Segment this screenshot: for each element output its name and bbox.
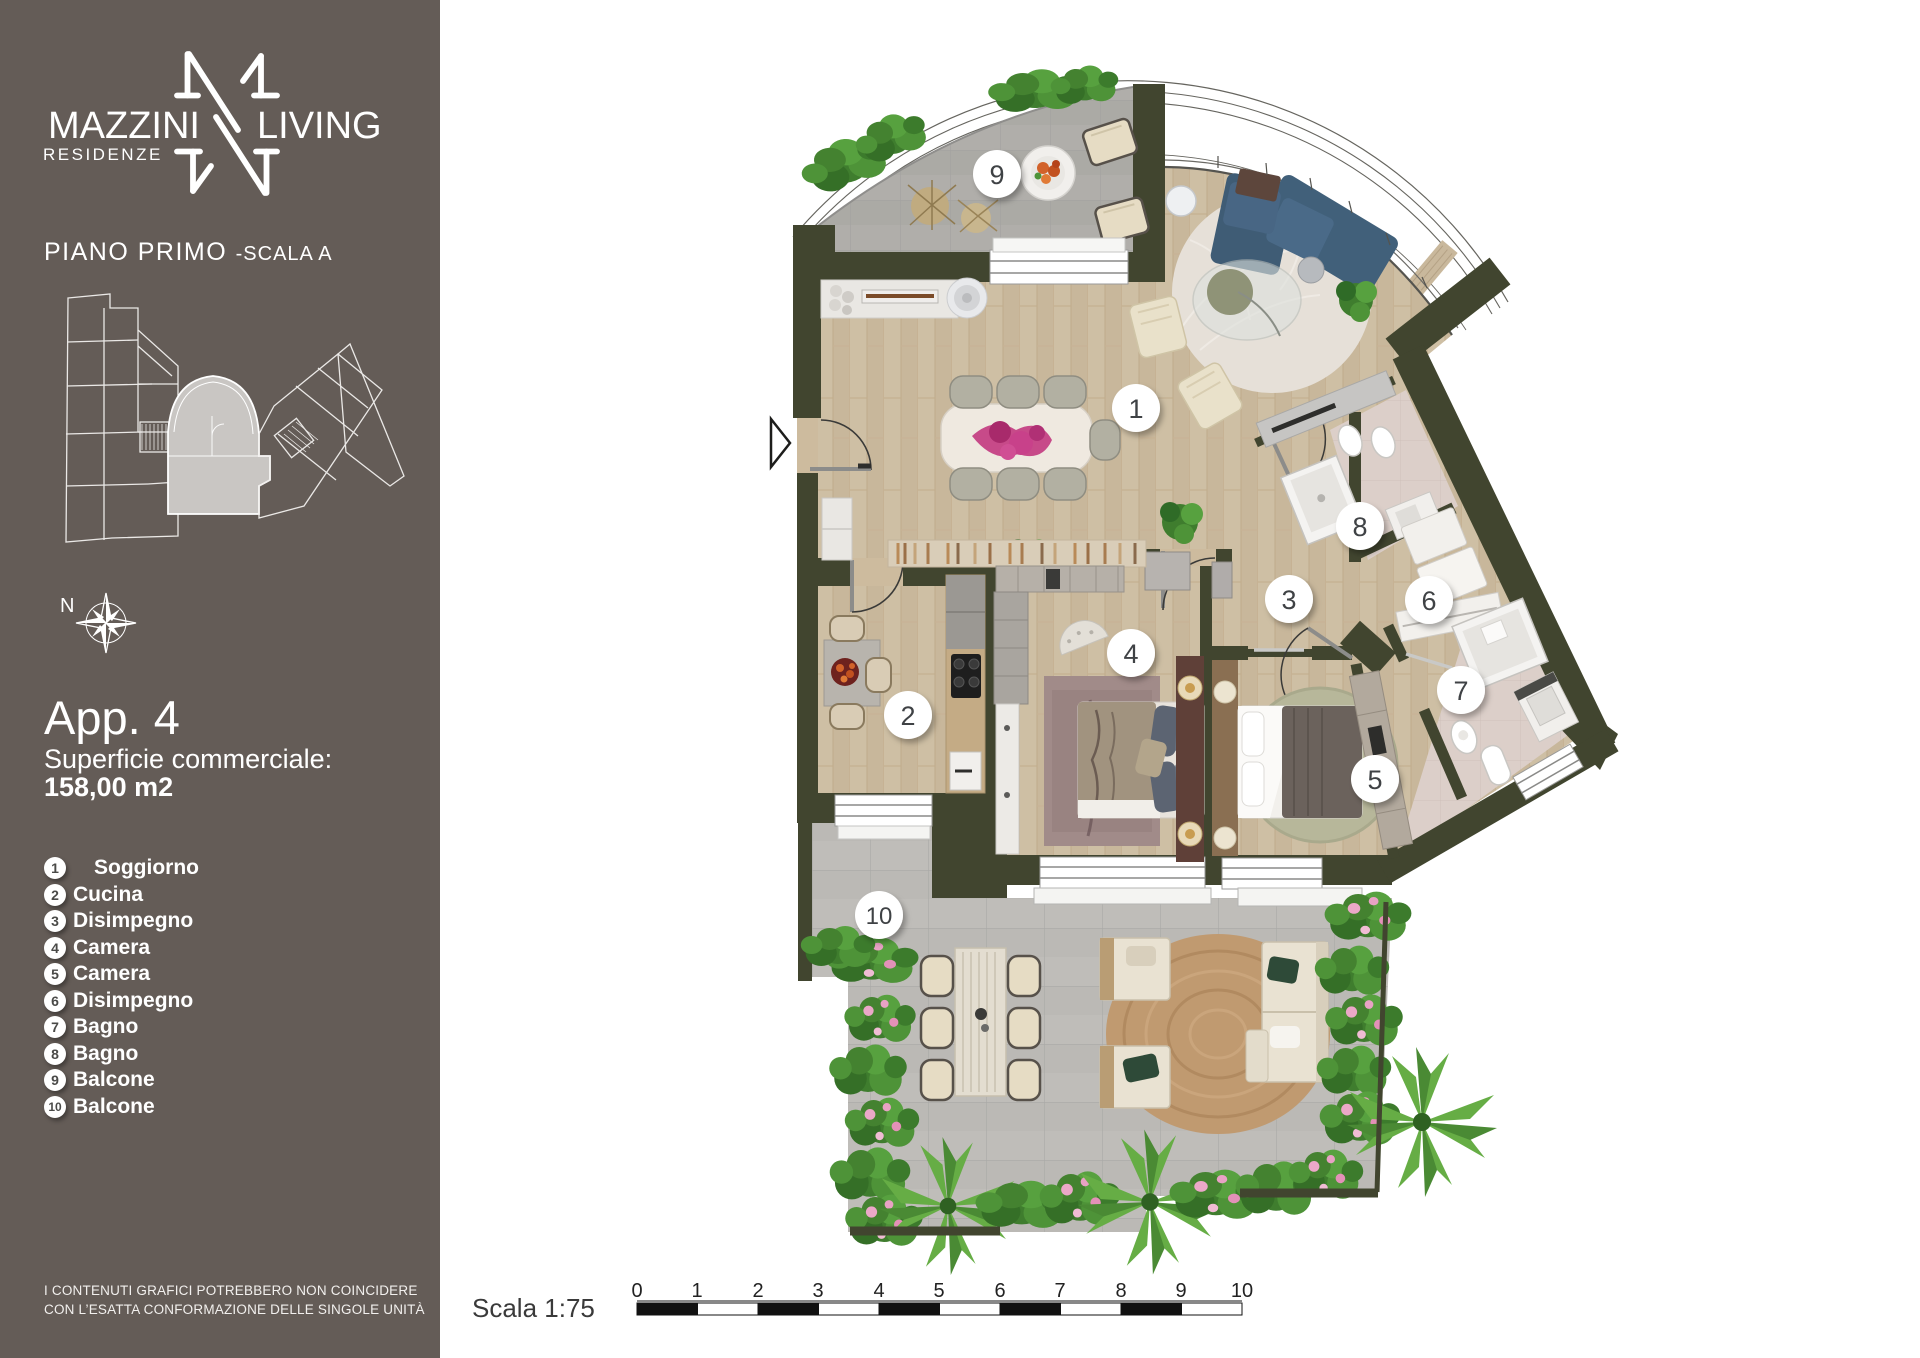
svg-text:8: 8 bbox=[1115, 1280, 1126, 1302]
svg-text:7: 7 bbox=[1054, 1280, 1065, 1302]
svg-text:5: 5 bbox=[933, 1280, 944, 1302]
svg-text:5: 5 bbox=[1367, 765, 1382, 795]
svg-text:1: 1 bbox=[1128, 394, 1143, 424]
svg-text:8: 8 bbox=[1352, 512, 1367, 542]
svg-text:9: 9 bbox=[989, 160, 1004, 190]
svg-text:4: 4 bbox=[873, 1280, 884, 1302]
svg-text:4: 4 bbox=[1123, 639, 1138, 669]
svg-text:1: 1 bbox=[691, 1280, 702, 1302]
svg-text:6: 6 bbox=[994, 1280, 1005, 1302]
svg-text:3: 3 bbox=[1281, 585, 1296, 615]
svg-text:10: 10 bbox=[866, 903, 893, 930]
svg-text:9: 9 bbox=[1175, 1280, 1186, 1302]
svg-text:2: 2 bbox=[752, 1280, 763, 1302]
svg-text:2: 2 bbox=[900, 701, 915, 731]
svg-text:0: 0 bbox=[631, 1280, 642, 1302]
svg-text:10: 10 bbox=[1231, 1280, 1253, 1302]
svg-text:7: 7 bbox=[1453, 676, 1468, 706]
svg-text:Scala 1:75: Scala 1:75 bbox=[472, 1293, 595, 1323]
svg-text:6: 6 bbox=[1421, 586, 1436, 616]
svg-text:3: 3 bbox=[812, 1280, 823, 1302]
